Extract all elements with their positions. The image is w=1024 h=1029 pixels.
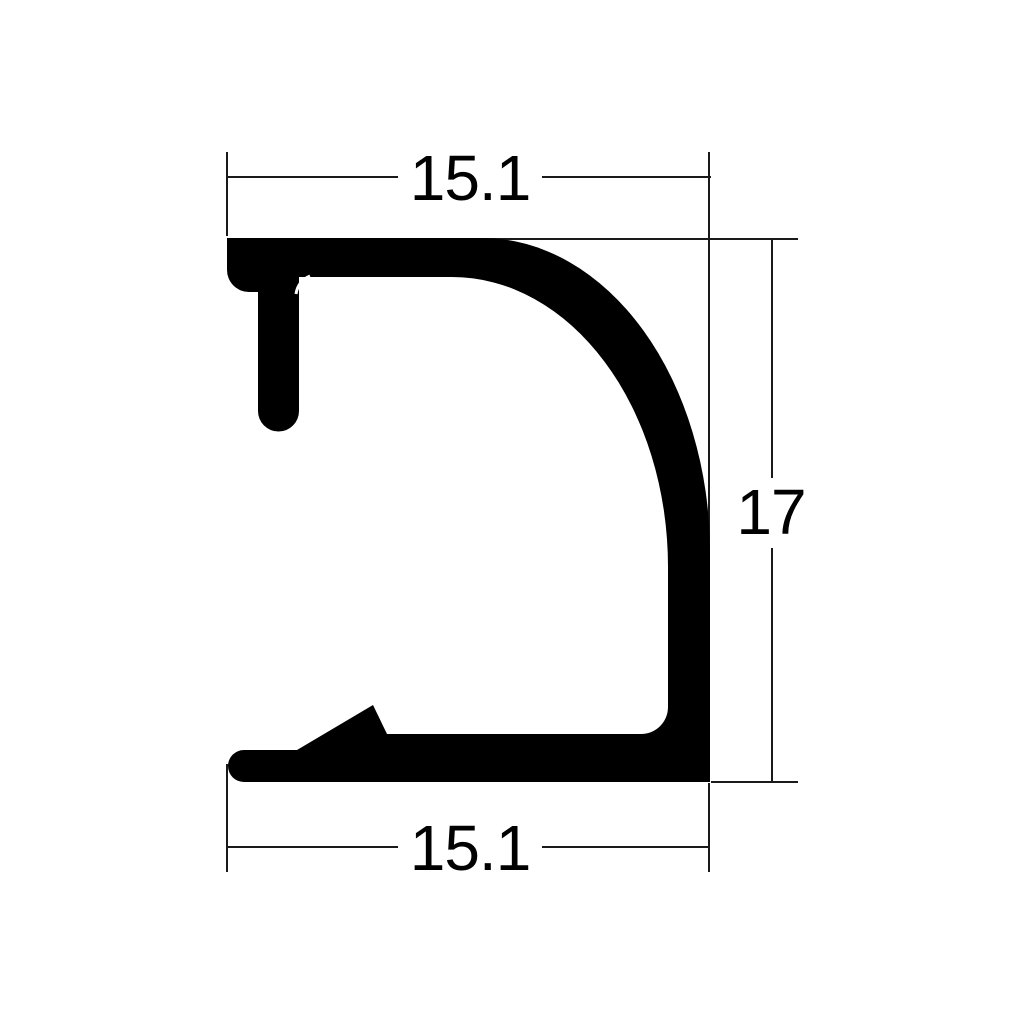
dimension-label-top-width: 15.1 <box>410 142 531 214</box>
dimension-label-bottom-width: 15.1 <box>410 812 531 884</box>
technical-drawing-page: 15.1 17 15.1 <box>0 0 1024 1024</box>
profile-dimension-drawing: 15.1 17 15.1 <box>0 0 1024 1024</box>
dimension-label-height: 17 <box>736 476 805 548</box>
